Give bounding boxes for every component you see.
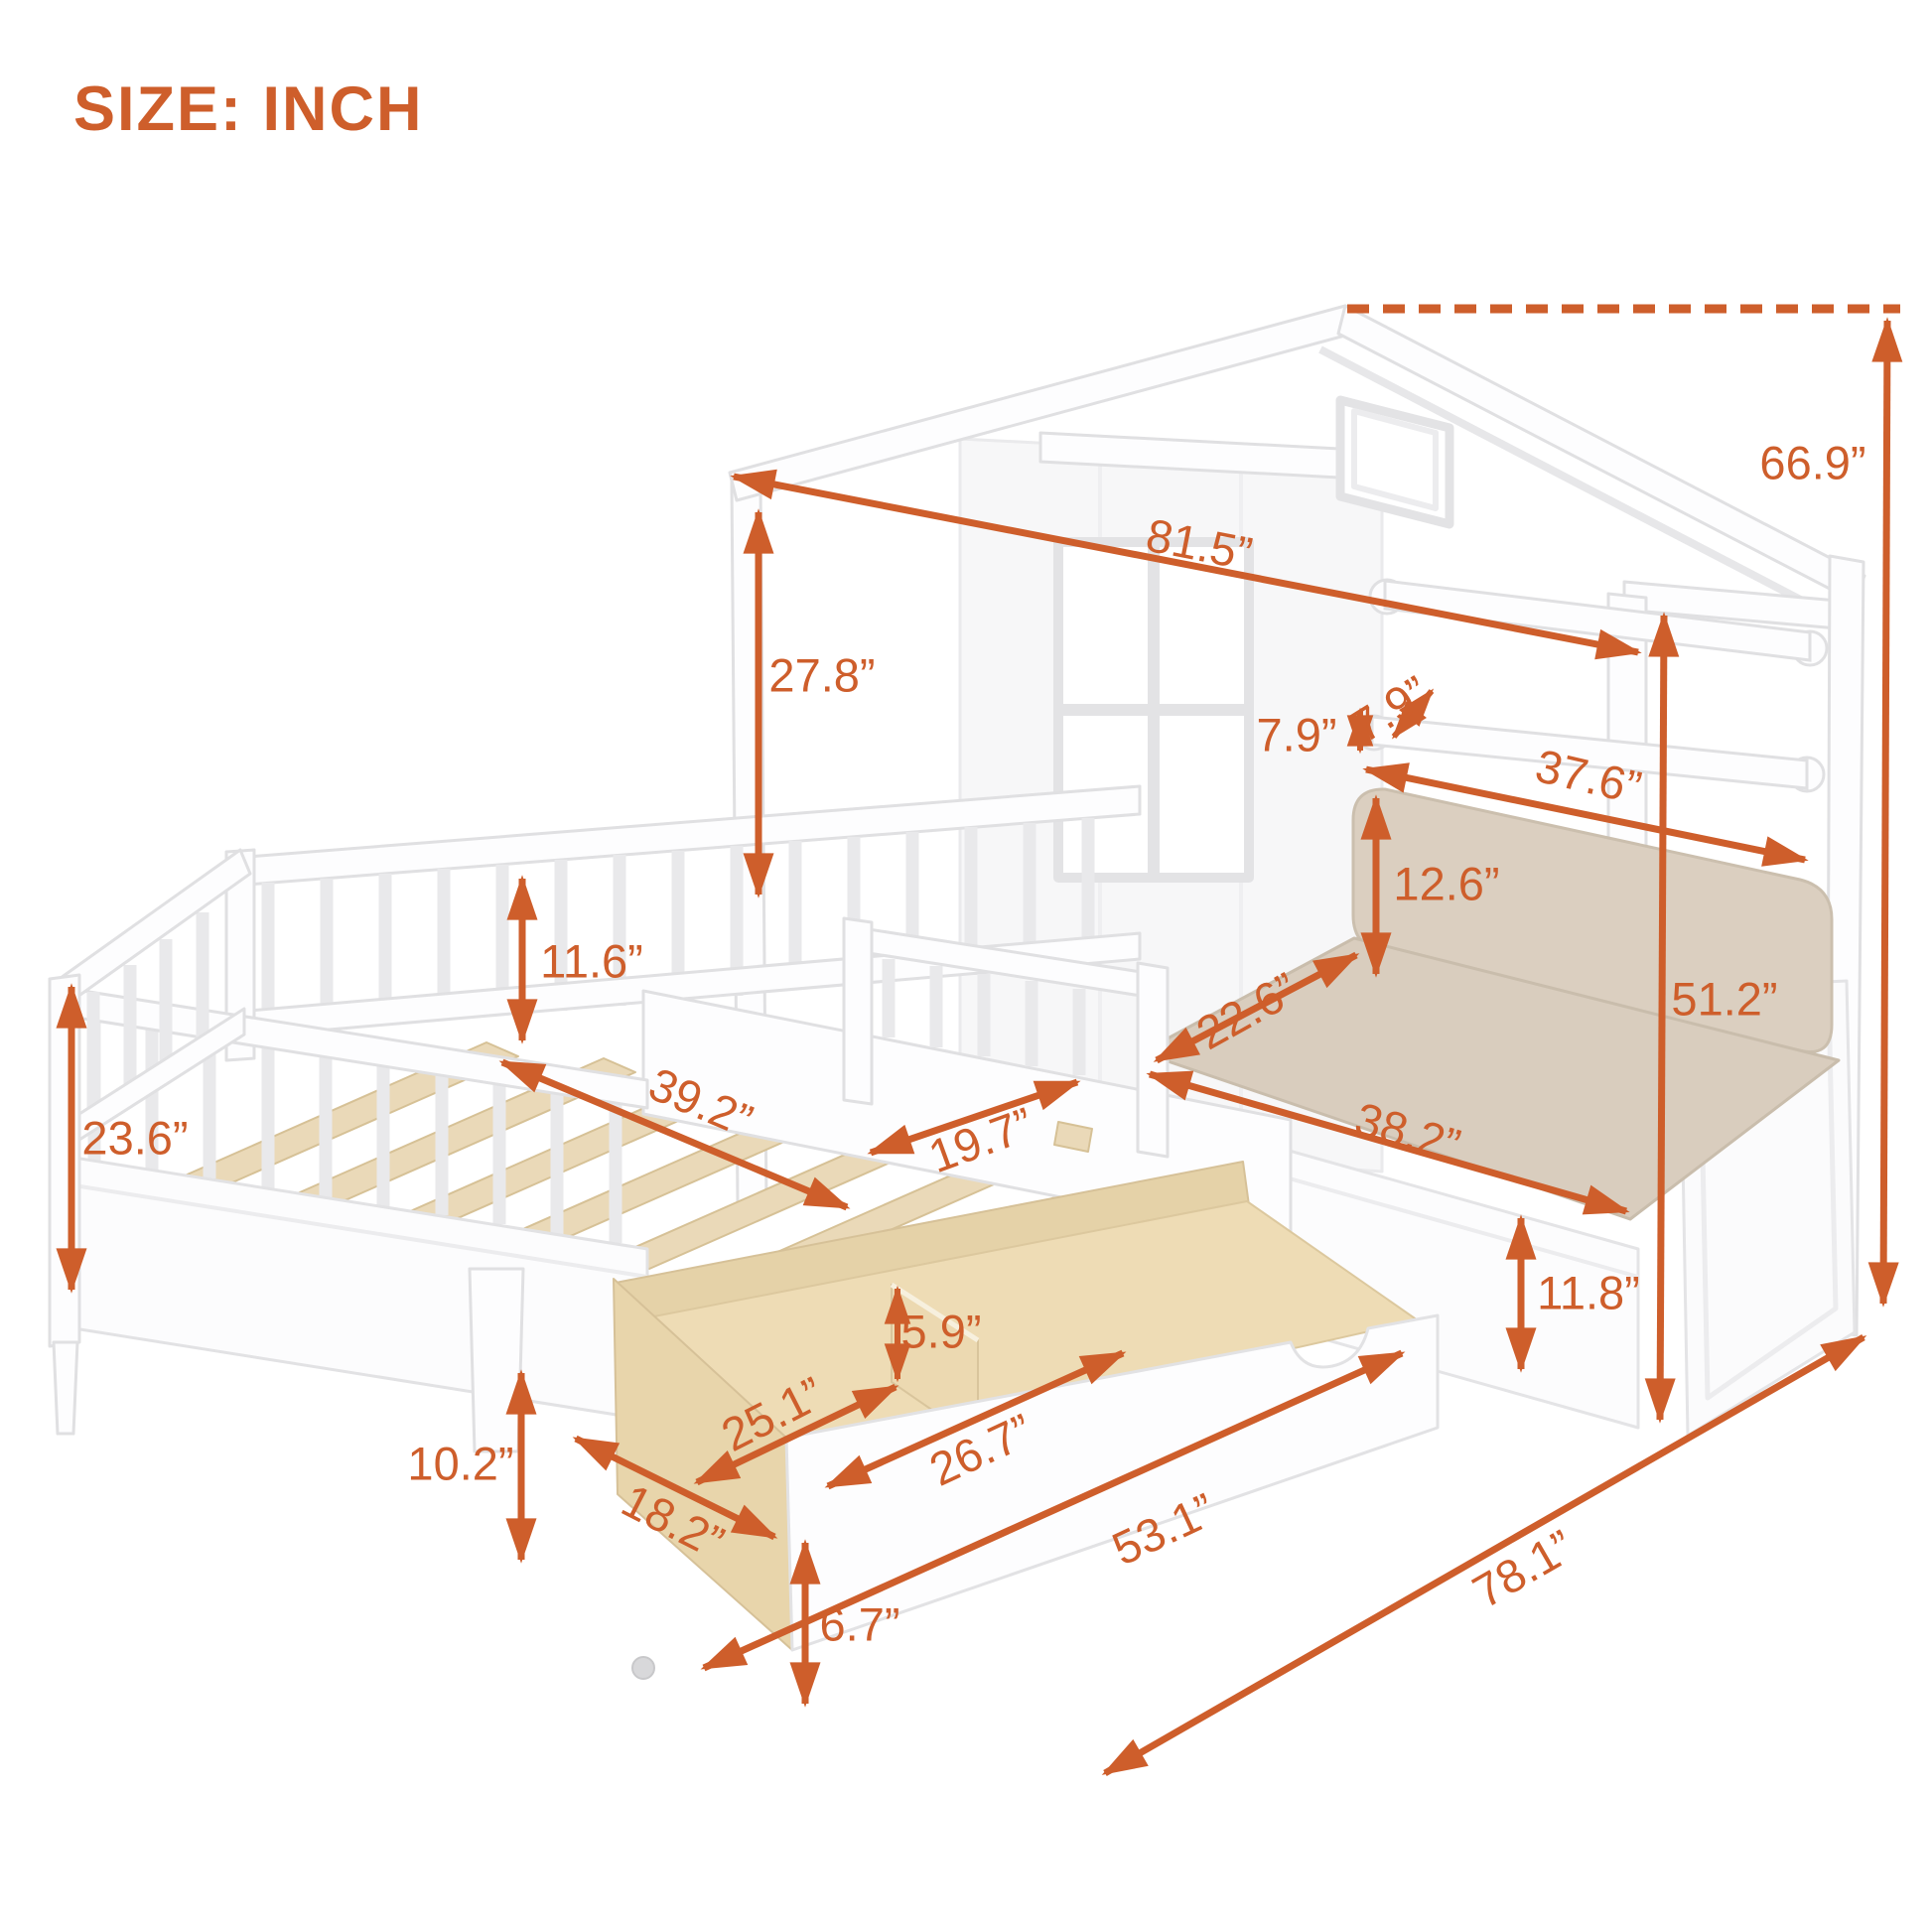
bed-illustration — [0, 0, 1932, 1932]
bed-leg — [470, 1269, 523, 1451]
arrow-66.9 — [1883, 321, 1887, 1304]
drawer-wheel — [632, 1657, 654, 1679]
page-title: SIZE: INCH — [73, 73, 424, 145]
lower-shelf — [1372, 717, 1807, 788]
arrow-51.2 — [1660, 616, 1664, 1420]
dimension-diagram: SIZE: INCH 81.5”66.9”27.8”7.9”7.9”37.6”1… — [0, 0, 1932, 1932]
